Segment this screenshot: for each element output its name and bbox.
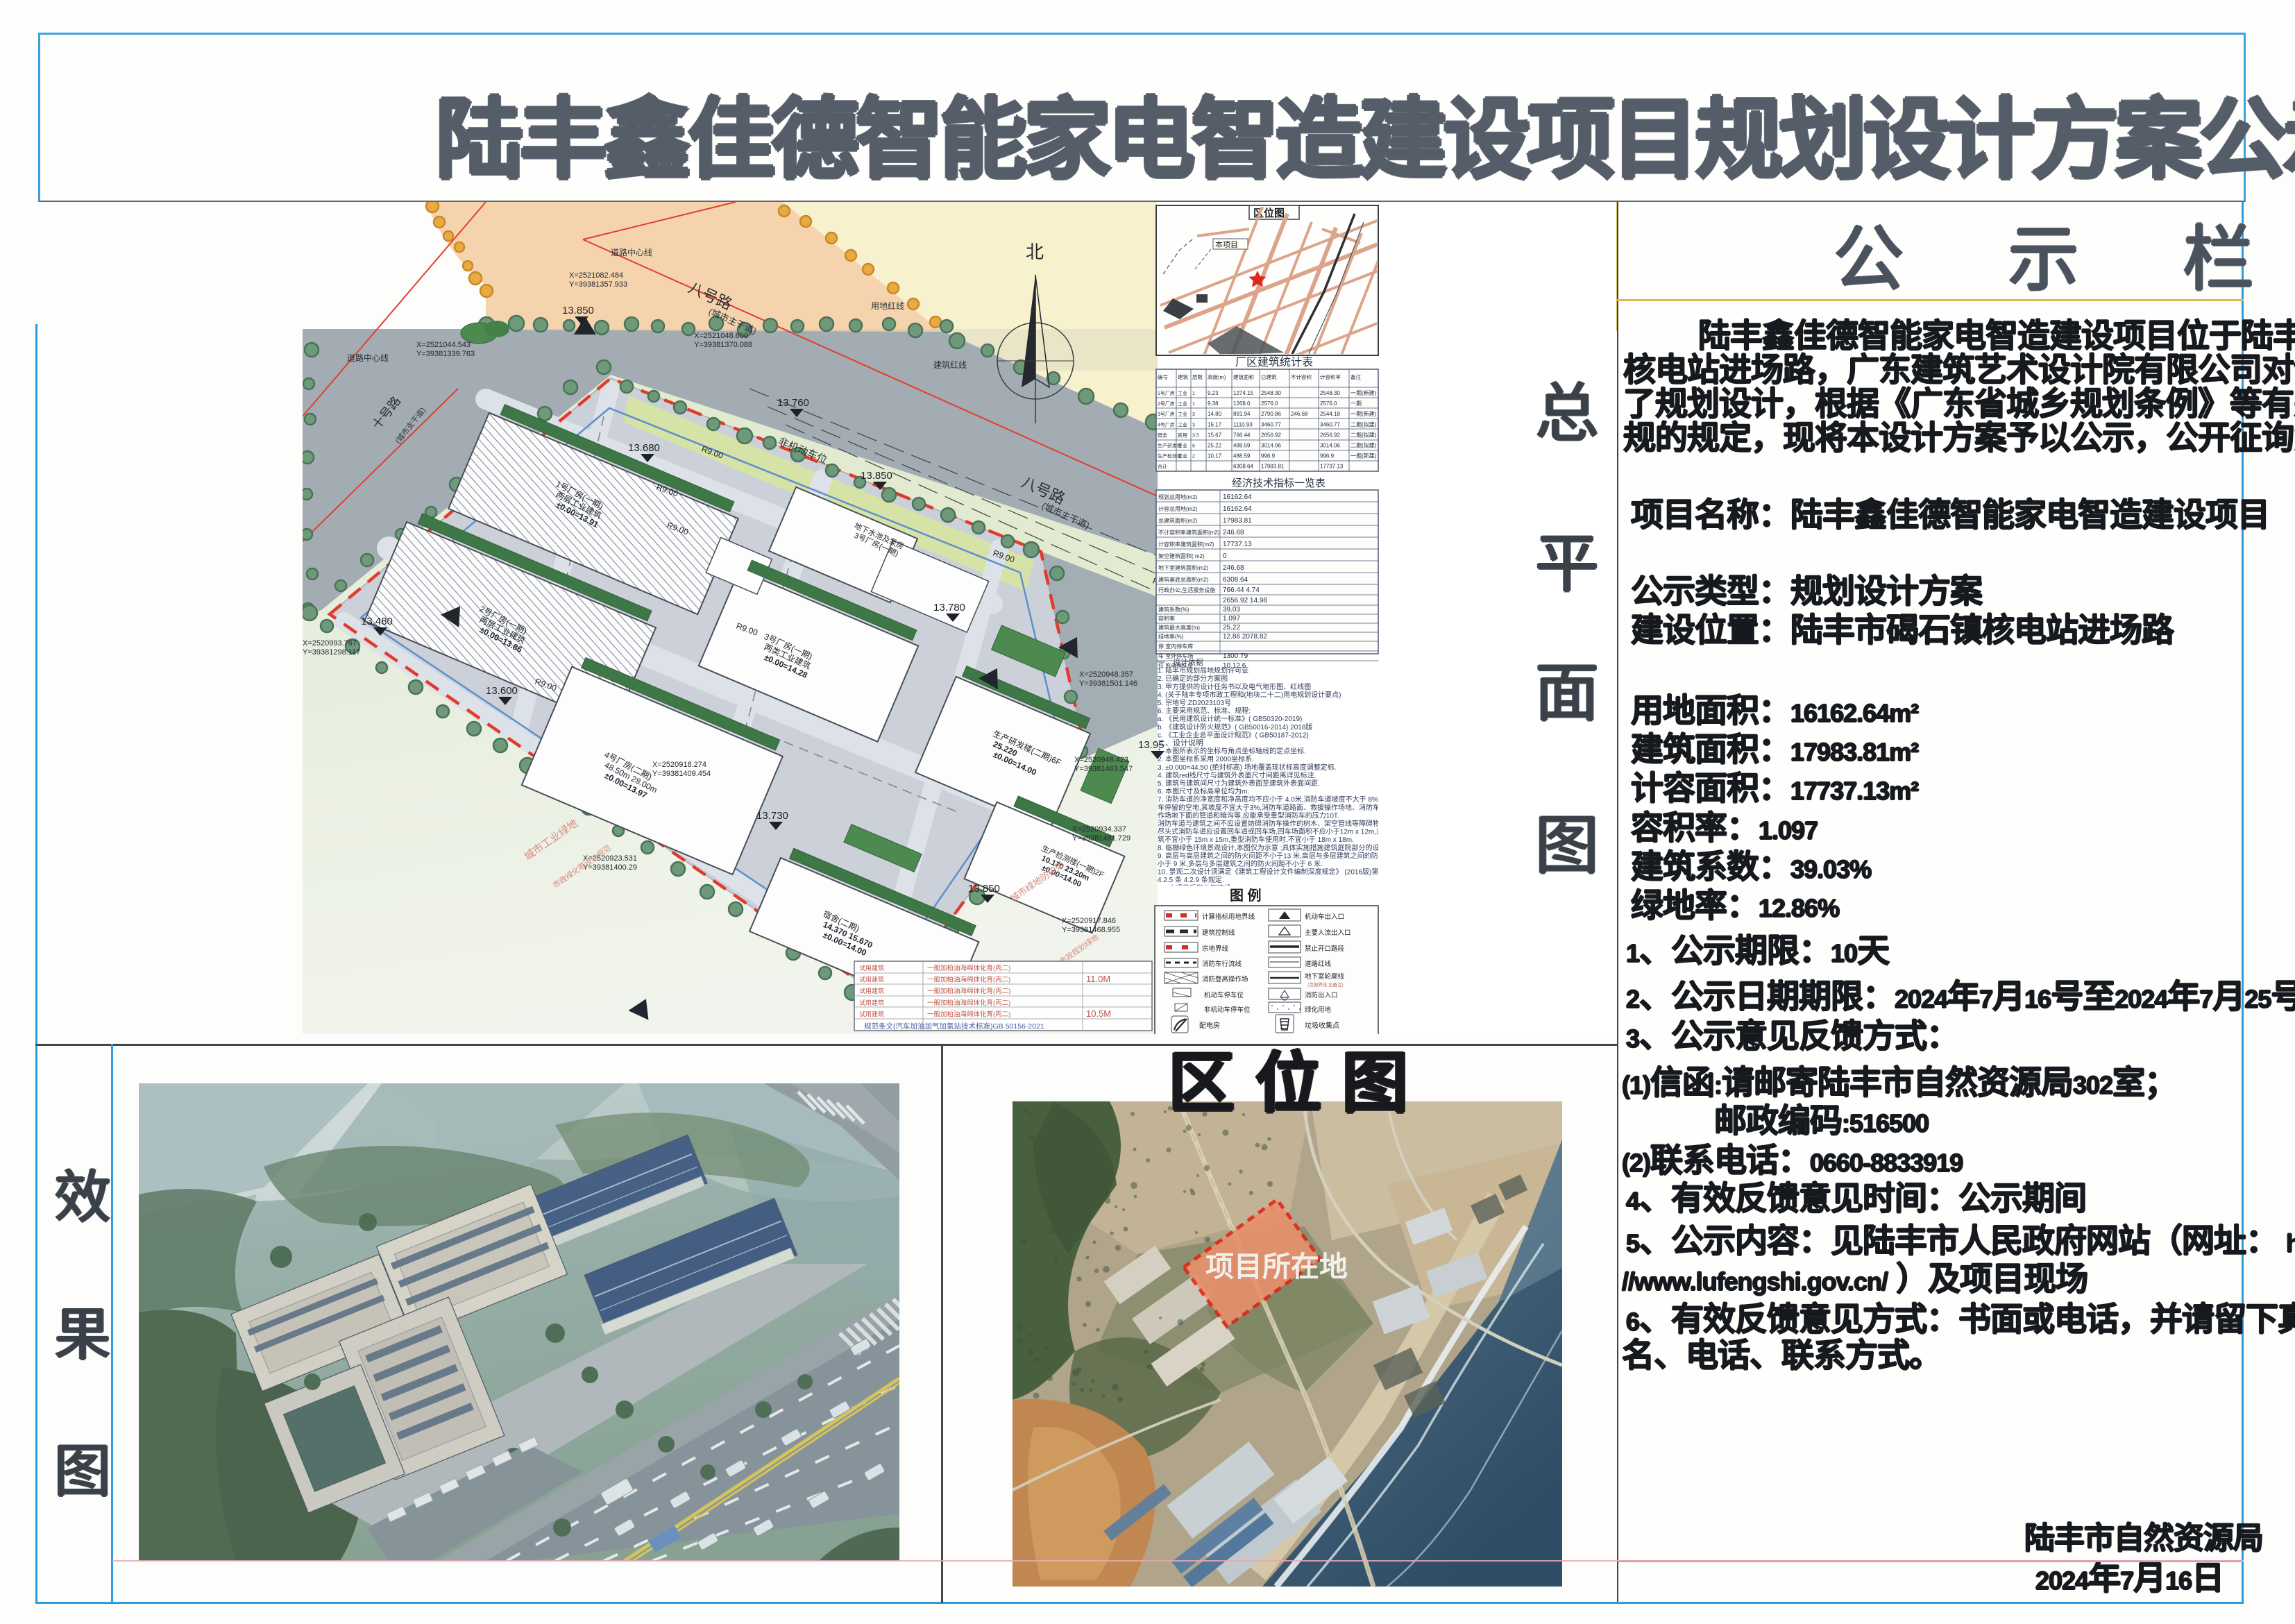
svg-text:一期: 一期 xyxy=(1350,400,1362,407)
svg-text:建筑面积: 建筑面积 xyxy=(1233,373,1254,380)
svg-text:编号: 编号 xyxy=(1158,373,1168,380)
svg-text:计容总用地(m2): 计容总用地(m2) xyxy=(1158,505,1198,512)
svg-text:非机动车停车位: 非机动车停车位 xyxy=(1204,1006,1251,1014)
svg-text:246.68: 246.68 xyxy=(1291,411,1308,417)
svg-text:17737.13: 17737.13 xyxy=(1320,464,1344,470)
svg-text:Y=39381468.955: Y=39381468.955 xyxy=(1062,926,1120,934)
svg-text:总建筑面积(m2): 总建筑面积(m2) xyxy=(1158,517,1198,524)
svg-text:(范围界线 见备注): (范围界线 见备注) xyxy=(1307,981,1344,988)
svg-text:一般加柏油海绵体化育(丙二): 一般加柏油海绵体化育(丙二) xyxy=(927,987,1010,995)
svg-text:3460.77: 3460.77 xyxy=(1261,421,1281,428)
svg-text:消防车行流线: 消防车行流线 xyxy=(1202,960,1242,968)
svg-text:试用建筑: 试用建筑 xyxy=(859,987,884,995)
svg-text:16162.64: 16162.64 xyxy=(1223,505,1252,513)
svg-text:3.5: 3.5 xyxy=(1192,433,1199,438)
svg-text:2548.30: 2548.30 xyxy=(1261,390,1281,396)
svg-text:容积率: 容积率 xyxy=(1158,615,1175,622)
svg-text:2: 2 xyxy=(1192,455,1195,459)
svg-text:X=2521082.484: X=2521082.484 xyxy=(569,271,623,280)
svg-text:3014.06: 3014.06 xyxy=(1261,443,1281,449)
svg-text:一期(新建): 一期(新建) xyxy=(1350,410,1377,417)
svg-text:配电房: 配电房 xyxy=(1199,1021,1220,1030)
svg-text:民用: 民用 xyxy=(1178,432,1187,438)
svg-text:工业: 工业 xyxy=(1178,411,1187,417)
svg-text:X=2520948.357: X=2520948.357 xyxy=(1079,670,1133,679)
svg-text:13.850: 13.850 xyxy=(562,305,594,316)
svg-text:10.17: 10.17 xyxy=(1208,453,1222,459)
svg-text:厂区建筑统计表: 厂区建筑统计表 xyxy=(1235,356,1313,369)
svg-text:7. 消防车道的净宽度和净高度均不应小于 4.0米,消防车道: 7. 消防车道的净宽度和净高度均不应小于 4.0米,消防车道坡度不大于 8%,供… xyxy=(1158,795,1401,804)
svg-text:13.600: 13.600 xyxy=(486,685,518,697)
svg-text:机动车停车位: 机动车停车位 xyxy=(1204,991,1244,999)
svg-text:2576.0: 2576.0 xyxy=(1320,400,1337,407)
svg-text:北: 北 xyxy=(1026,242,1044,262)
svg-text:二期(拟建): 二期(拟建) xyxy=(1350,431,1377,438)
svg-text:地下室建筑面积(m2): 地下室建筑面积(m2) xyxy=(1158,564,1209,571)
svg-text:2号厂房: 2号厂房 xyxy=(1158,400,1175,407)
svg-text:二、设计说明: 二、设计说明 xyxy=(1158,738,1203,747)
svg-text:合计: 合计 xyxy=(1158,464,1167,470)
svg-text:1. 本图所表示的坐标与角点坐标轴线的定点坐标.: 1. 本图所表示的坐标与角点坐标轴线的定点坐标. xyxy=(1158,747,1306,756)
svg-text:2656.92 14.98: 2656.92 14.98 xyxy=(1223,597,1267,604)
svg-text:建筑: 建筑 xyxy=(1178,373,1189,380)
svg-text:2548.30: 2548.30 xyxy=(1320,390,1340,396)
svg-text:9.23: 9.23 xyxy=(1208,390,1219,396)
svg-text:4. (关于陆丰专项市政工程和(地块二十二)用电规划设计要点: 4. (关于陆丰专项市政工程和(地块二十二)用电规划设计要点) xyxy=(1158,690,1341,699)
svg-text:17983.81: 17983.81 xyxy=(1261,464,1285,470)
svg-text:1. 陆丰市规划局地规划许可证: 1. 陆丰市规划局地规划许可证 xyxy=(1158,666,1248,675)
svg-text:X=2520948.423: X=2520948.423 xyxy=(1074,756,1128,764)
svg-text:15.17: 15.17 xyxy=(1208,421,1222,428)
svg-text:二期(拟建): 二期(拟建) xyxy=(1350,421,1377,428)
svg-text:备注: 备注 xyxy=(1350,373,1362,380)
svg-text:绿地率(%): 绿地率(%) xyxy=(1158,633,1184,640)
svg-text:13.730: 13.730 xyxy=(756,810,788,822)
svg-text:4.2.5 条 4.2.9 条规定.: 4.2.5 条 4.2.9 条规定. xyxy=(1158,875,1224,884)
svg-text:6308.64: 6308.64 xyxy=(1223,576,1248,584)
svg-text:宿舍: 宿舍 xyxy=(1158,432,1167,438)
svg-text:行政办公,生活服务设施: 行政办公,生活服务设施 xyxy=(1158,586,1215,593)
svg-text:10. 景观二次设计须满足《建筑工程设计文件编制深度规定》: 10. 景观二次设计须满足《建筑工程设计文件编制深度规定》 (2016版)第4.… xyxy=(1158,868,1401,877)
svg-text:8. 临棚绿色环境景观设计,本图仅为示意 ;具体实施措施建筑: 8. 临棚绿色环境景观设计,本图仅为示意 ;具体实施措施建筑庭院部分的设计应符合… xyxy=(1158,843,1414,852)
svg-text:15.67: 15.67 xyxy=(1208,432,1222,438)
svg-text:工业: 工业 xyxy=(1178,390,1187,396)
svg-text:17737.13: 17737.13 xyxy=(1223,541,1252,548)
svg-text:13.850: 13.850 xyxy=(968,883,1000,895)
svg-text:891.94: 891.94 xyxy=(1233,411,1251,417)
svg-text:绿化用地: 绿化用地 xyxy=(1305,1006,1332,1014)
svg-text:2576.0: 2576.0 xyxy=(1261,400,1278,407)
svg-text:小于 9 米,多层与多层建筑之间的防火间距不小于 6 米.: 小于 9 米,多层与多层建筑之间的防火间距不小于 6 米. xyxy=(1158,859,1323,868)
svg-text:6308.64: 6308.64 xyxy=(1233,464,1253,470)
svg-text:不计容积: 不计容积 xyxy=(1291,373,1312,380)
svg-text:停 室内停车库: 停 室内停车库 xyxy=(1158,643,1193,650)
svg-text:3. ±0.000=44.50 (绝对标高) 场地覆盖现状标: 3. ±0.000=44.50 (绝对标高) 场地覆盖现状标高度调整定标. xyxy=(1158,763,1337,772)
svg-text:39.03: 39.03 xyxy=(1223,606,1240,614)
svg-text:禁止开口路段: 禁止开口路段 xyxy=(1305,945,1345,953)
svg-text:13.780: 13.780 xyxy=(933,602,965,614)
svg-text:Y=39381357.933: Y=39381357.933 xyxy=(569,280,627,289)
svg-text:计容积率: 计容积率 xyxy=(1320,373,1341,380)
svg-text:Y=39381298.117: Y=39381298.117 xyxy=(303,648,360,657)
svg-text:地下室轮廓线: 地下室轮廓线 xyxy=(1305,972,1345,981)
svg-text:用地红线: 用地红线 xyxy=(871,301,904,311)
svg-text:1268.0: 1268.0 xyxy=(1233,400,1251,407)
svg-text:高度(m): 高度(m) xyxy=(1208,373,1226,380)
svg-text:垃圾收集点: 垃圾收集点 xyxy=(1305,1021,1339,1030)
svg-text:作场地下面的管道和暗沟等,应能承受重型消防车的压力10T.: 作场地下面的管道和暗沟等,应能承受重型消防车的压力10T. xyxy=(1158,811,1339,820)
svg-text:3460.77: 3460.77 xyxy=(1320,421,1340,428)
svg-text:2656.92: 2656.92 xyxy=(1320,432,1340,438)
svg-text:996.9: 996.9 xyxy=(1320,453,1335,459)
svg-text:宗地界线: 宗地界线 xyxy=(1202,945,1229,953)
svg-text:尽头式消防车道应设置回车道或回车场,回车场面积不应小于12m: 尽头式消防车道应设置回车道或回车场,回车场面积不应小于12m x 12m,对于高… xyxy=(1158,827,1411,836)
svg-text:1274.15: 1274.15 xyxy=(1233,390,1253,396)
svg-text:层数: 层数 xyxy=(1192,373,1203,380)
svg-text:主要人流出入口: 主要人流出入口 xyxy=(1305,929,1351,937)
svg-text:道路红线: 道路红线 xyxy=(1305,960,1332,968)
svg-text:2656.92: 2656.92 xyxy=(1261,432,1281,438)
svg-text:Y=39381481.729: Y=39381481.729 xyxy=(1072,834,1130,843)
svg-text:246.68: 246.68 xyxy=(1223,529,1244,536)
svg-text:11.0M: 11.0M xyxy=(1086,974,1110,984)
svg-text:建筑基底总面积(m2): 建筑基底总面积(m2) xyxy=(1158,576,1209,583)
svg-text:12.86 2078.82: 12.86 2078.82 xyxy=(1223,633,1267,641)
svg-text:b. 《建筑设计防火规范》( GB50016-2014) 2: b. 《建筑设计防火规范》( GB50016-2014) 2018版 xyxy=(1158,722,1312,731)
svg-text:车停留的空地,其坡度不宜大于3%,消防车道路面、救援操作场地: 车停留的空地,其坡度不宜大于3%,消防车道路面、救援操作场地、消防车道和救援操 xyxy=(1158,803,1414,812)
svg-text:13.760: 13.760 xyxy=(777,397,809,409)
svg-text:1号厂房: 1号厂房 xyxy=(1158,390,1175,396)
svg-text:一般加柏油海绵体化育(丙二): 一般加柏油海绵体化育(丙二) xyxy=(927,1010,1010,1018)
svg-text:X=2520934.337: X=2520934.337 xyxy=(1072,825,1126,834)
svg-text:3: 3 xyxy=(1192,423,1195,428)
svg-text:Y=39381463.547: Y=39381463.547 xyxy=(1074,765,1133,773)
svg-text:道路中心线: 道路中心线 xyxy=(347,353,389,363)
svg-text:13.850: 13.850 xyxy=(861,470,892,482)
svg-text:1: 1 xyxy=(1192,391,1195,396)
svg-text:图 例: 图 例 xyxy=(1230,887,1262,904)
svg-text:消防车道与建筑之间不应设置妨碍消防车操作的树木、架空管线等障: 消防车道与建筑之间不应设置妨碍消防车操作的树木、架空管线等障碍物. xyxy=(1158,819,1382,828)
svg-text:X=2521048.600: X=2521048.600 xyxy=(694,332,748,340)
svg-text:一般加柏油海绵体化育(丙二): 一般加柏油海绵体化育(丙二) xyxy=(927,976,1010,984)
svg-text:2790.86: 2790.86 xyxy=(1261,411,1281,417)
svg-text:1.097: 1.097 xyxy=(1223,615,1240,623)
svg-text:Y=39381339.763: Y=39381339.763 xyxy=(416,350,475,358)
svg-text:试用建筑: 试用建筑 xyxy=(859,976,884,983)
svg-text:经济技术指标一览表: 经济技术指标一览表 xyxy=(1232,477,1326,489)
svg-text:a. 《民用建筑设计统一标准》( GB50320-2019): a. 《民用建筑设计统一标准》( GB50320-2019) xyxy=(1158,714,1302,723)
svg-text:X=2521044.543: X=2521044.543 xyxy=(416,341,471,349)
svg-text:建筑控制线: 建筑控制线 xyxy=(1202,929,1235,937)
svg-text:规划总用地(m2): 规划总用地(m2) xyxy=(1158,493,1198,500)
svg-text:二期(拟建): 二期(拟建) xyxy=(1350,442,1377,449)
svg-text:1: 1 xyxy=(1192,402,1195,407)
svg-text:3. 甲方提供的设计任务书以及电气地形图、红线图: 3. 甲方提供的设计任务书以及电气地形图、红线图 xyxy=(1158,682,1311,691)
svg-text:计容积率建筑面积(m2): 计容积率建筑面积(m2) xyxy=(1158,541,1214,548)
svg-text:已建筑: 已建筑 xyxy=(1261,373,1277,380)
svg-text:不计容积率建筑面积(m2): 不计容积率建筑面积(m2) xyxy=(1158,529,1220,536)
svg-text:一期(新建): 一期(新建) xyxy=(1350,452,1377,459)
svg-text:4. 建筑red线尺寸与建筑外表面尺寸间距离详见标注.: 4. 建筑red线尺寸与建筑外表面尺寸间距离详见标注. xyxy=(1158,770,1316,779)
svg-text:建筑最大高度(m): 建筑最大高度(m) xyxy=(1158,624,1200,631)
svg-text:25.22: 25.22 xyxy=(1223,624,1240,632)
svg-text:规范条文(汽车加油加气加氢站技术标准)GB 50156-20: 规范条文(汽车加油加气加氢站技术标准)GB 50156-2021 xyxy=(864,1022,1044,1031)
svg-text:996.9: 996.9 xyxy=(1261,453,1276,459)
svg-text:Y=39381409.454: Y=39381409.454 xyxy=(652,770,711,778)
svg-text:项目所在地: 项目所在地 xyxy=(1205,1251,1348,1283)
svg-text:工业: 工业 xyxy=(1178,400,1187,407)
svg-text:机动车出入口: 机动车出入口 xyxy=(1305,913,1344,921)
svg-text:工业: 工业 xyxy=(1178,453,1187,459)
svg-text:道路中心线: 道路中心线 xyxy=(611,247,652,257)
svg-text:3: 3 xyxy=(1192,412,1195,417)
svg-text:16162.64: 16162.64 xyxy=(1223,493,1252,501)
svg-text:2544.18: 2544.18 xyxy=(1320,411,1340,417)
svg-text:13.680: 13.680 xyxy=(628,442,660,454)
svg-text:Y=39381501.146: Y=39381501.146 xyxy=(1079,679,1137,688)
svg-text:试用建筑: 试用建筑 xyxy=(859,999,884,1006)
svg-text:6. 主要采用规范、标准、规程:: 6. 主要采用规范、标准、规程: xyxy=(1158,707,1251,716)
svg-text:10.5M: 10.5M xyxy=(1086,1008,1111,1019)
svg-text:筑不宜小于 15m x 15m,重型消防车使用时,不宜小于: 筑不宜小于 15m x 15m,重型消防车使用时,不宜小于 18m x 18m. xyxy=(1158,835,1354,844)
svg-text:488.59: 488.59 xyxy=(1233,443,1251,449)
svg-text:试用建筑: 试用建筑 xyxy=(859,1010,884,1017)
svg-text:17983.81: 17983.81 xyxy=(1223,517,1252,525)
svg-text:计算指标用地界线: 计算指标用地界线 xyxy=(1202,913,1255,921)
svg-text:本项目: 本项目 xyxy=(1215,239,1238,249)
svg-text:消防出入口: 消防出入口 xyxy=(1305,991,1338,999)
svg-text:766.44: 766.44 xyxy=(1233,432,1251,438)
svg-text:1110.93: 1110.93 xyxy=(1233,421,1253,428)
svg-text:3号厂房: 3号厂房 xyxy=(1158,411,1175,417)
svg-text:建筑系数(%): 建筑系数(%) xyxy=(1158,606,1189,613)
svg-text:一期(新建): 一期(新建) xyxy=(1350,389,1377,396)
svg-text:c. 《工业企业总平面设计规范》( GB50187-2012: c. 《工业企业总平面设计规范》( GB50187-2012) xyxy=(1158,730,1309,739)
svg-text:Y=39381370.088: Y=39381370.088 xyxy=(694,341,752,349)
svg-text:6. 本图尺寸及标高单位均为m.: 6. 本图尺寸及标高单位均为m. xyxy=(1158,787,1249,796)
svg-text:2. 已确定的部分方案图: 2. 已确定的部分方案图 xyxy=(1158,674,1228,683)
svg-text:9. 高层与高层建筑之间的防火间距不小于13 米,高层与多层: 9. 高层与高层建筑之间的防火间距不小于13 米,高层与多层建筑之间的防火间距不 xyxy=(1158,851,1406,860)
svg-text:工业: 工业 xyxy=(1178,443,1187,449)
svg-text:一、设计依据: 一、设计依据 xyxy=(1158,657,1203,667)
svg-text:3014.06: 3014.06 xyxy=(1320,443,1340,449)
svg-text:试用建筑: 试用建筑 xyxy=(859,964,884,972)
svg-text:766.44 4.74: 766.44 4.74 xyxy=(1223,586,1260,594)
svg-text:一般加柏油海绵体化育(丙二): 一般加柏油海绵体化育(丙二) xyxy=(927,999,1010,1007)
svg-text:14.80: 14.80 xyxy=(1208,411,1222,417)
svg-text:架空建筑面积( m2): 架空建筑面积( m2) xyxy=(1158,552,1205,559)
svg-text:1300 79: 1300 79 xyxy=(1223,652,1248,660)
svg-text:488.59: 488.59 xyxy=(1233,453,1251,459)
svg-text:一般加柏油海绵体化育(丙二): 一般加柏油海绵体化育(丙二) xyxy=(927,964,1010,972)
svg-text:4号厂房: 4号厂房 xyxy=(1158,421,1175,428)
svg-text:X=2520993.767: X=2520993.767 xyxy=(303,639,357,648)
svg-text:X=2520918.274: X=2520918.274 xyxy=(652,761,706,769)
svg-text:5. 建筑与建筑间尺寸为建筑外表面至建筑外表面间距.: 5. 建筑与建筑间尺寸为建筑外表面至建筑外表面间距. xyxy=(1158,779,1320,788)
svg-text:消防登高操作场: 消防登高操作场 xyxy=(1202,975,1248,983)
svg-text:6: 6 xyxy=(1192,444,1195,449)
svg-text:246.68: 246.68 xyxy=(1223,564,1244,572)
svg-text:2. 本图坐标系采用 2000坐标系.: 2. 本图坐标系采用 2000坐标系. xyxy=(1158,754,1254,763)
svg-text:工业: 工业 xyxy=(1178,421,1187,428)
svg-text:13.480: 13.480 xyxy=(361,616,393,627)
svg-text:建筑红线: 建筑红线 xyxy=(933,360,967,370)
svg-text:X=2520917.846: X=2520917.846 xyxy=(1062,917,1116,925)
svg-text:0: 0 xyxy=(1223,552,1227,560)
svg-text:9.38: 9.38 xyxy=(1208,400,1219,407)
svg-text:25.22: 25.22 xyxy=(1208,443,1222,449)
svg-text:5. 宗地号:ZD2023103号: 5. 宗地号:ZD2023103号 xyxy=(1158,698,1231,707)
